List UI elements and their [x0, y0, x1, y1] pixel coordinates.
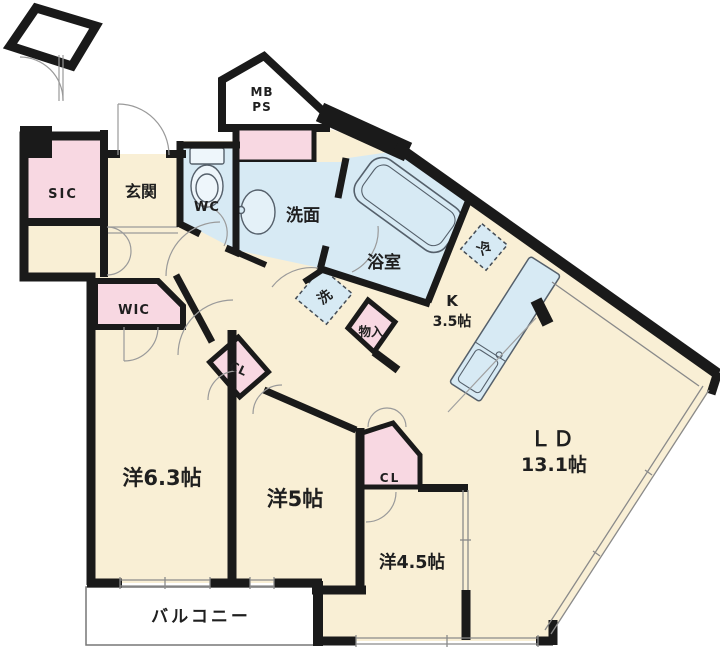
label-living-line1: ＬＤ	[530, 427, 576, 451]
label-living-line2: 13.1帖	[521, 453, 587, 476]
label-kitchen-line2: 3.5帖	[433, 313, 472, 330]
label-bedroom2: 洋5帖	[267, 487, 324, 511]
door-arc-entrance	[118, 104, 169, 155]
label-wic: WIC	[118, 303, 150, 318]
label-genkan: 玄関	[125, 182, 157, 201]
room-mbps	[222, 56, 326, 128]
label-bedroom1: 洋6.3帖	[122, 466, 201, 490]
label-sic: SIC	[48, 187, 78, 202]
label-kitchen-line1: K	[446, 292, 459, 310]
toilet-icon	[190, 148, 224, 207]
label-cl-bedroom: CL	[380, 471, 400, 485]
label-balcony: バルコニー	[151, 607, 251, 627]
label-senmen: 洗面	[286, 205, 320, 226]
linen-shelf	[236, 128, 314, 162]
label-wc: WC	[194, 200, 220, 215]
floor-plan-canvas: SIC 玄関 WC MB PS 洗面 浴室 洗 物入 冷 K 3.5帖 ＬＤ 1…	[0, 0, 720, 650]
label-bathroom: 浴室	[367, 252, 401, 273]
label-monoire: 物入	[358, 324, 384, 339]
label-bedroom3: 洋4.5帖	[379, 552, 446, 573]
floor-plan: SIC 玄関 WC MB PS 洗面 浴室 洗 物入 冷 K 3.5帖 ＬＤ 1…	[0, 0, 720, 650]
label-mbps-line1: MB	[250, 85, 273, 99]
label-mbps-line2: PS	[252, 100, 271, 114]
